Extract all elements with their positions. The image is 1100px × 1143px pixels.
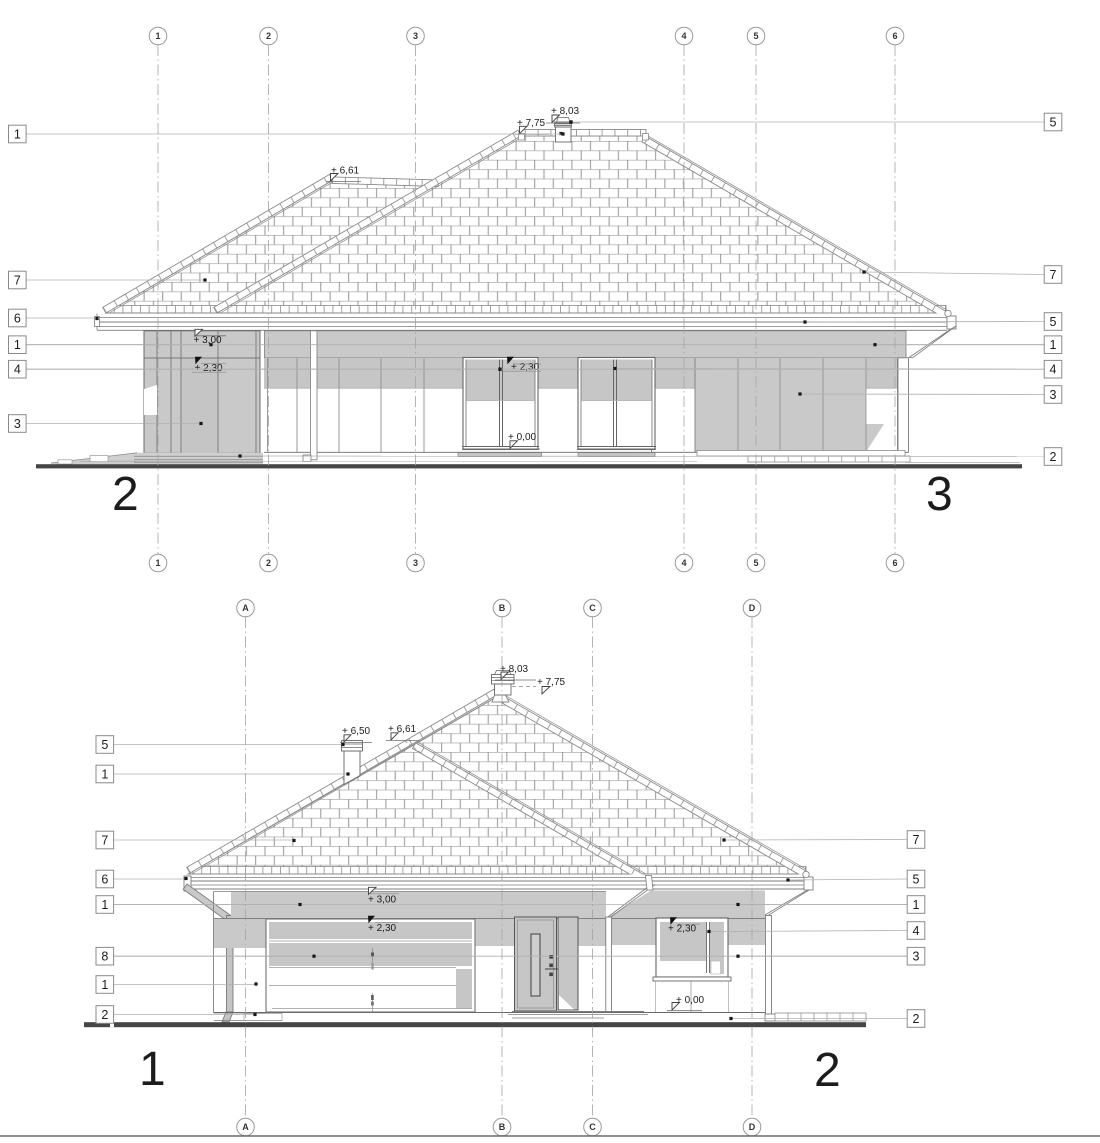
- svg-text:1: 1: [101, 767, 108, 781]
- svg-text:1: 1: [155, 31, 160, 41]
- svg-text:A: A: [242, 1122, 249, 1132]
- svg-text:8: 8: [101, 950, 108, 964]
- svg-text:1: 1: [101, 978, 108, 992]
- svg-text:6: 6: [892, 558, 897, 568]
- svg-text:+ 2,30: + 2,30: [668, 923, 697, 934]
- svg-text:1: 1: [913, 898, 920, 912]
- svg-text:4: 4: [913, 924, 920, 938]
- svg-text:3: 3: [913, 950, 920, 964]
- svg-text:5: 5: [913, 872, 920, 886]
- svg-text:7: 7: [14, 273, 21, 287]
- svg-text:5: 5: [1050, 115, 1057, 129]
- svg-text:+ 3,00: + 3,00: [368, 895, 397, 906]
- svg-text:D: D: [749, 603, 756, 613]
- svg-text:2: 2: [266, 31, 271, 41]
- svg-text:4: 4: [14, 363, 21, 377]
- svg-text:3: 3: [1050, 388, 1057, 402]
- svg-text:2: 2: [112, 468, 139, 521]
- svg-text:+ 0,00: + 0,00: [676, 995, 705, 1006]
- svg-text:+ 2,30: + 2,30: [368, 923, 397, 934]
- svg-text:1: 1: [101, 898, 108, 912]
- svg-text:2: 2: [1050, 450, 1057, 464]
- svg-text:4: 4: [681, 31, 686, 41]
- svg-text:1: 1: [139, 1043, 166, 1096]
- svg-text:6: 6: [101, 872, 108, 886]
- svg-text:2: 2: [913, 1012, 920, 1026]
- svg-text:6: 6: [892, 31, 897, 41]
- svg-text:4: 4: [1050, 363, 1057, 377]
- svg-text:3: 3: [926, 468, 953, 521]
- svg-text:1: 1: [155, 558, 160, 568]
- svg-text:3: 3: [413, 31, 418, 41]
- svg-text:A: A: [242, 603, 249, 613]
- svg-text:5: 5: [101, 738, 108, 752]
- svg-text:1: 1: [1050, 338, 1057, 352]
- svg-text:1: 1: [14, 338, 21, 352]
- svg-text:B: B: [499, 603, 506, 613]
- svg-text:+ 7,75: + 7,75: [537, 677, 566, 688]
- svg-text:2: 2: [101, 1008, 108, 1022]
- svg-text:4: 4: [681, 558, 686, 568]
- svg-text:5: 5: [753, 31, 758, 41]
- svg-text:5: 5: [753, 558, 758, 568]
- svg-text:D: D: [749, 1122, 756, 1132]
- svg-text:3: 3: [14, 417, 21, 431]
- svg-text:C: C: [589, 1122, 596, 1132]
- svg-text:7: 7: [101, 833, 108, 847]
- svg-text:5: 5: [1050, 315, 1057, 329]
- svg-text:1: 1: [14, 127, 21, 141]
- svg-text:C: C: [589, 603, 596, 613]
- svg-text:B: B: [499, 1122, 506, 1132]
- svg-text:6: 6: [14, 311, 21, 325]
- svg-text:7: 7: [1050, 268, 1057, 282]
- svg-text:3: 3: [413, 558, 418, 568]
- svg-text:2: 2: [266, 558, 271, 568]
- svg-text:7: 7: [913, 833, 920, 847]
- svg-text:2: 2: [814, 1044, 841, 1097]
